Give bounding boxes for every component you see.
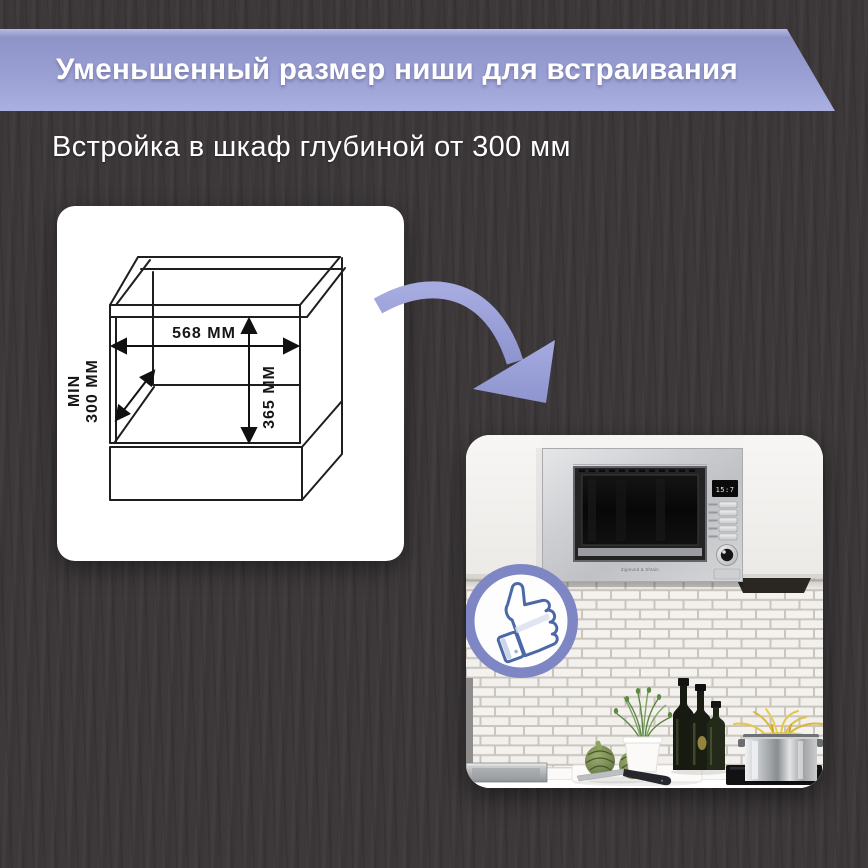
microwave-brand-label: Zigmund & Shtain <box>621 567 659 572</box>
promo-banner: Уменьшенный размер ниши для встраивания <box>0 29 840 111</box>
thumbs-up-icon <box>466 564 578 678</box>
subtitle: Встройка в шкаф глубиной от 300 мм <box>52 131 571 164</box>
diagram-card: 568 ММ 365 ММ MIN 300 ММ <box>57 206 404 561</box>
photo-card: 15:7 Zigmund & Shtain <box>466 435 823 788</box>
dimension-depth-label-value: 300 ММ <box>84 359 101 423</box>
microwave-door <box>573 466 707 562</box>
page-background: Уменьшенный размер ниши для встраивания … <box>0 0 868 868</box>
dimension-height-label: 365 ММ <box>261 365 278 429</box>
banner-title: Уменьшенный размер ниши для встраивания <box>56 29 738 111</box>
curved-arrow-icon <box>368 272 568 422</box>
dimension-depth-label-min: MIN <box>66 375 83 407</box>
microwave: 15:7 Zigmund & Shtain <box>542 448 743 587</box>
door-window <box>582 475 698 545</box>
sink <box>466 763 547 782</box>
dimension-width-label: 568 ММ <box>172 325 236 342</box>
under-cabinet-vent <box>736 578 811 593</box>
door-handle-strip <box>578 548 702 556</box>
microwave-display-text: 15:7 <box>716 486 735 494</box>
microwave-open-button <box>714 569 740 579</box>
cabinet-niche-diagram: 568 ММ 365 ММ MIN 300 ММ <box>57 206 404 561</box>
kitchen-photo: 15:7 Zigmund & Shtain <box>466 435 823 788</box>
